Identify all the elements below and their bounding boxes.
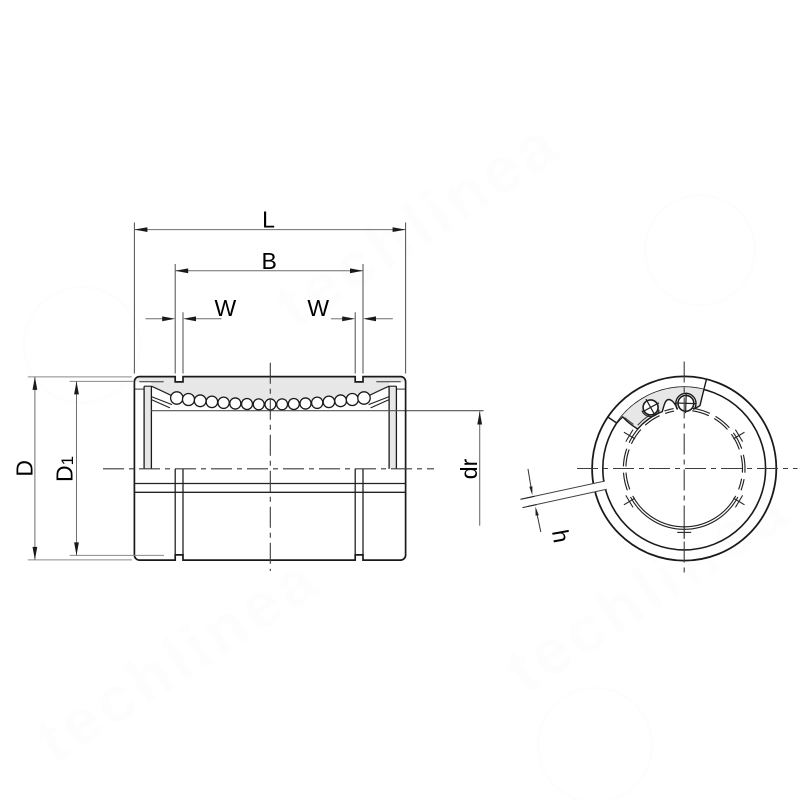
- svg-text:W: W: [307, 295, 329, 321]
- svg-text:D: D: [11, 460, 37, 477]
- svg-text:dr: dr: [456, 458, 482, 479]
- svg-text:B: B: [262, 248, 277, 274]
- svg-text:L: L: [262, 207, 275, 233]
- svg-text:W: W: [215, 295, 237, 321]
